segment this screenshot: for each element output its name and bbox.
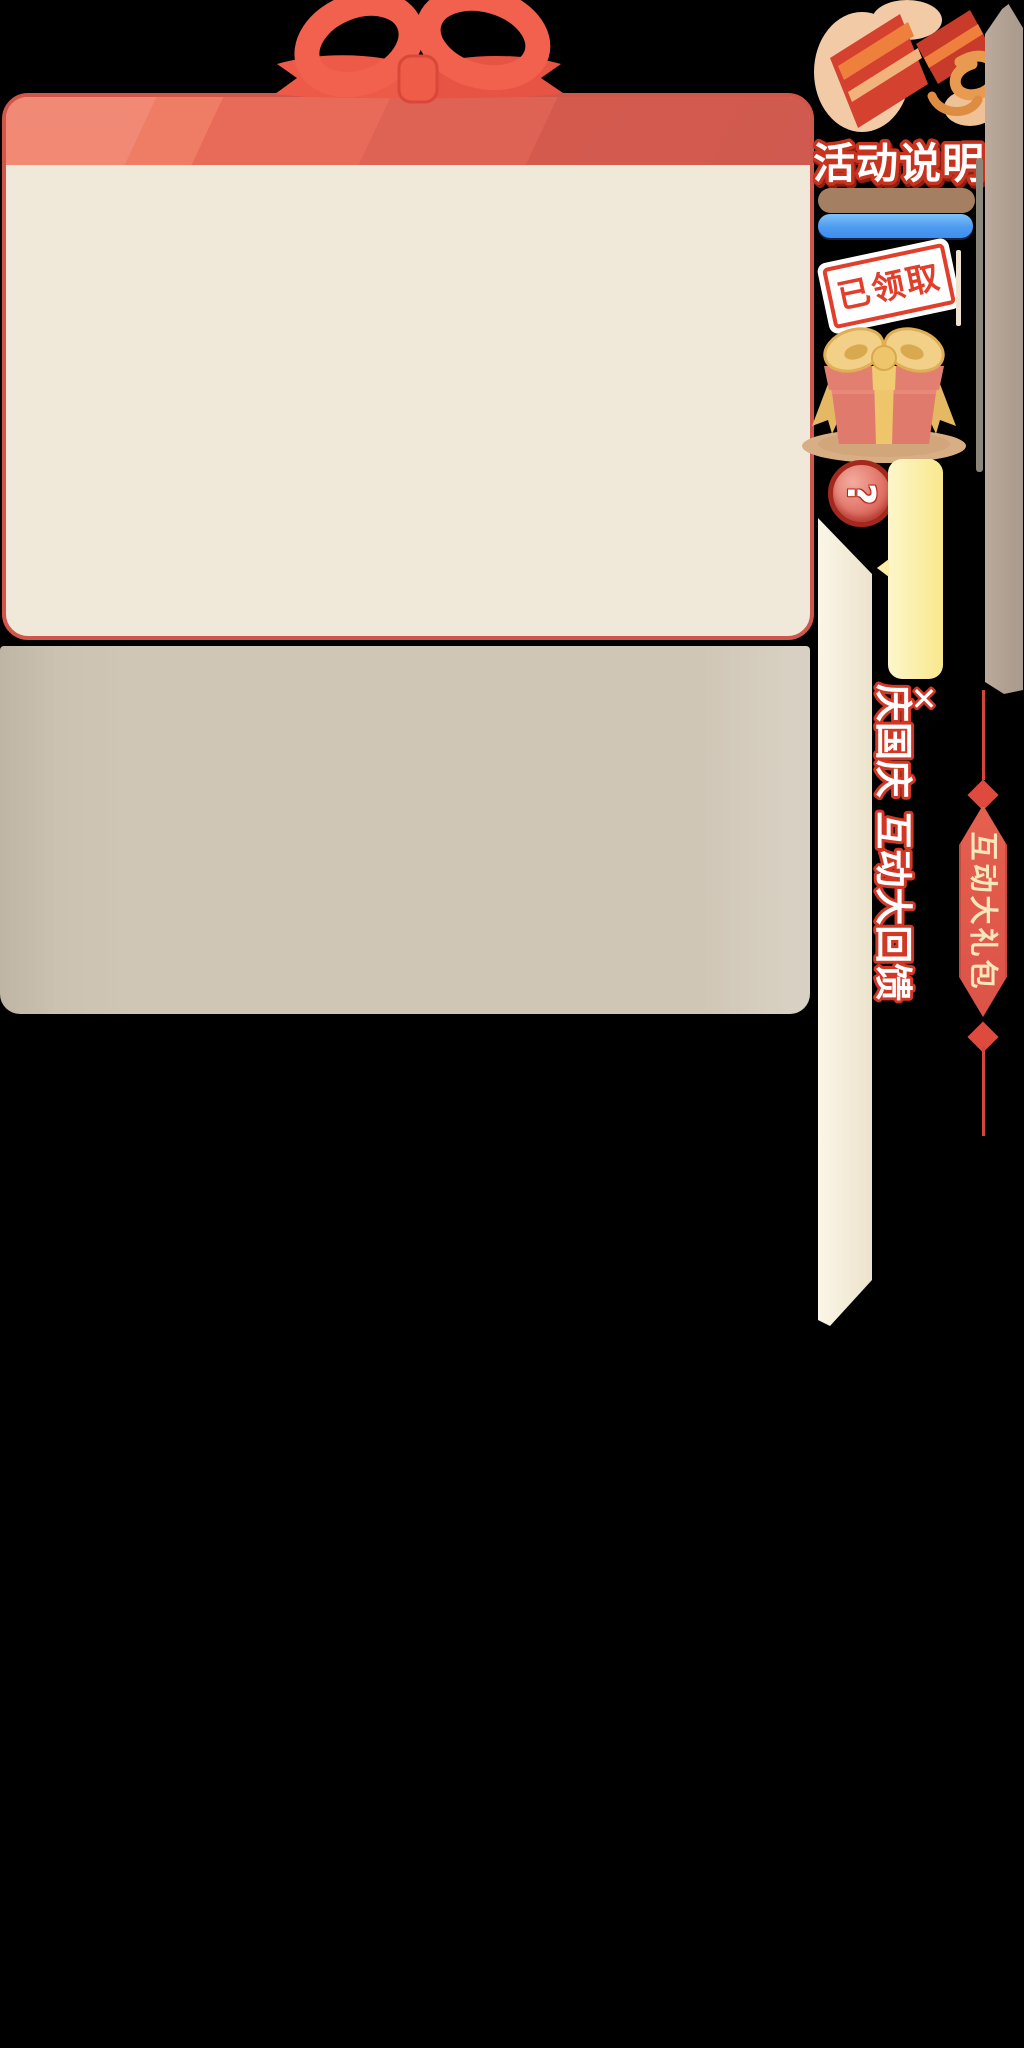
question-mark-icon: ?: [842, 482, 880, 504]
help-button[interactable]: ?: [828, 460, 895, 527]
lower-content-panel: [0, 646, 810, 1014]
banner-cord-bottom: [982, 1046, 985, 1136]
scrollbar-thumb[interactable]: [976, 158, 983, 472]
side-rail-bar: [985, 4, 1023, 694]
gift-pack-banner[interactable]: 互动大礼包: [959, 805, 1007, 1017]
streamer-ribbon: [818, 518, 872, 1326]
close-icon: ✕: [911, 680, 938, 718]
gift-box-icon[interactable]: [798, 314, 970, 466]
ribbon-bow-icon: [263, 0, 575, 108]
brown-bar: [818, 188, 975, 213]
banner-cord-top: [982, 690, 985, 780]
gift-pack-banner-label: 互动大礼包: [969, 831, 998, 991]
tooltip-bubble: [888, 459, 943, 679]
activity-rules-button[interactable]: 活动说明: [813, 132, 985, 194]
close-button[interactable]: ✕: [902, 676, 946, 720]
blue-button[interactable]: [818, 214, 973, 238]
activity-rules-label: 活动说明: [813, 139, 985, 188]
open-gift-icon: [812, 0, 1002, 142]
event-title-label: 庆国庆 互动大回馈: [871, 684, 915, 1001]
main-dialog-panel: [2, 93, 814, 640]
event-title: 庆国庆 互动大回馈: [866, 676, 922, 1028]
